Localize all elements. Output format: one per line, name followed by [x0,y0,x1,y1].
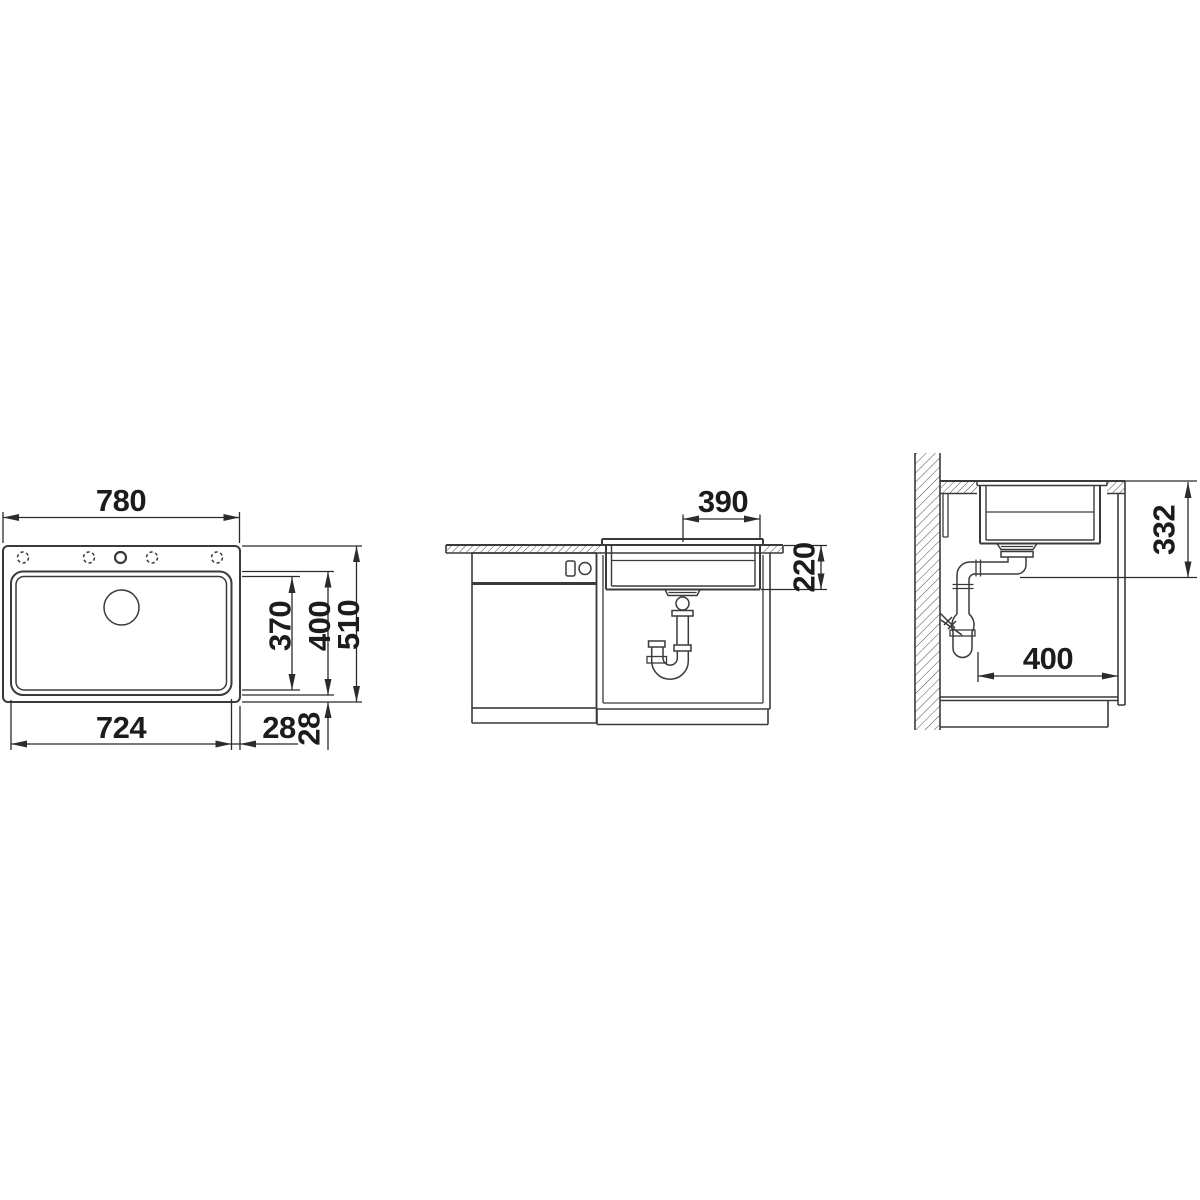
tap-hole-optional-3 [147,552,158,563]
dim-label-28-side: 28 [262,710,296,745]
tap-holes [18,552,223,563]
front-view: 390 220 [446,484,827,725]
dim-label-510: 510 [331,600,366,650]
tap-hole-main [115,552,126,563]
appliance-display [566,561,575,576]
cleanout-cap [649,641,666,647]
arrow-right [224,514,240,521]
dim-label-220: 220 [787,542,822,592]
trap-outer-bend [652,661,689,679]
top-view: 780 370 400 510 28 [3,483,366,750]
dim-label-28-front: 28 [292,712,327,746]
pipe-clamp-2 [953,585,974,589]
dim-bowl-inner-length: 370 [263,577,298,690]
tap-hole-optional-1 [18,552,29,563]
bowl-inner-outline [16,577,227,691]
dim-label-780: 780 [96,483,146,518]
locknut [672,611,693,617]
technical-drawing-page: 780 370 400 510 28 [0,0,1200,1200]
bowl-section [606,545,760,590]
wall-outlet-pipe [940,613,962,635]
dim-label-332: 332 [1147,505,1182,555]
dim-rim-front: 28 [292,702,332,750]
left-cabinet [472,553,597,723]
dim-label-400-side: 400 [1023,641,1073,676]
drain-hole [104,590,139,625]
dim-height-below-worktop: 332 [1020,482,1197,578]
tap-hole-optional-4 [212,552,223,563]
back-rail [943,494,948,538]
side-cabinet [940,494,1125,728]
dim-label-370: 370 [263,601,298,651]
sink-cabinet [597,553,771,725]
side-view: 400 332 [915,453,1197,730]
arrow-left [3,514,19,521]
dim-total-width: 780 [3,483,240,521]
appliance-knob [579,563,591,575]
dim-label-390: 390 [698,484,748,519]
wall-section [915,453,940,730]
tap-hole-optional-2 [84,552,95,563]
locknut-side [1001,552,1033,558]
dim-bowl-width: 724 28 [11,710,298,748]
worktop [446,545,783,553]
sink-outline [3,546,240,702]
trap-inner-bend [663,658,677,665]
front-siphon [647,590,700,680]
dim-cabinet-clearance: 400 [978,641,1118,682]
technical-drawing: 780 370 400 510 28 [0,0,1200,1200]
ball-joint [676,597,689,610]
dim-total-length: 510 [331,546,366,702]
side-worktop [940,481,1197,494]
dim-label-724: 724 [96,710,147,745]
dim-center-to-edge: 390 [683,484,760,542]
slip-nut [674,645,691,651]
